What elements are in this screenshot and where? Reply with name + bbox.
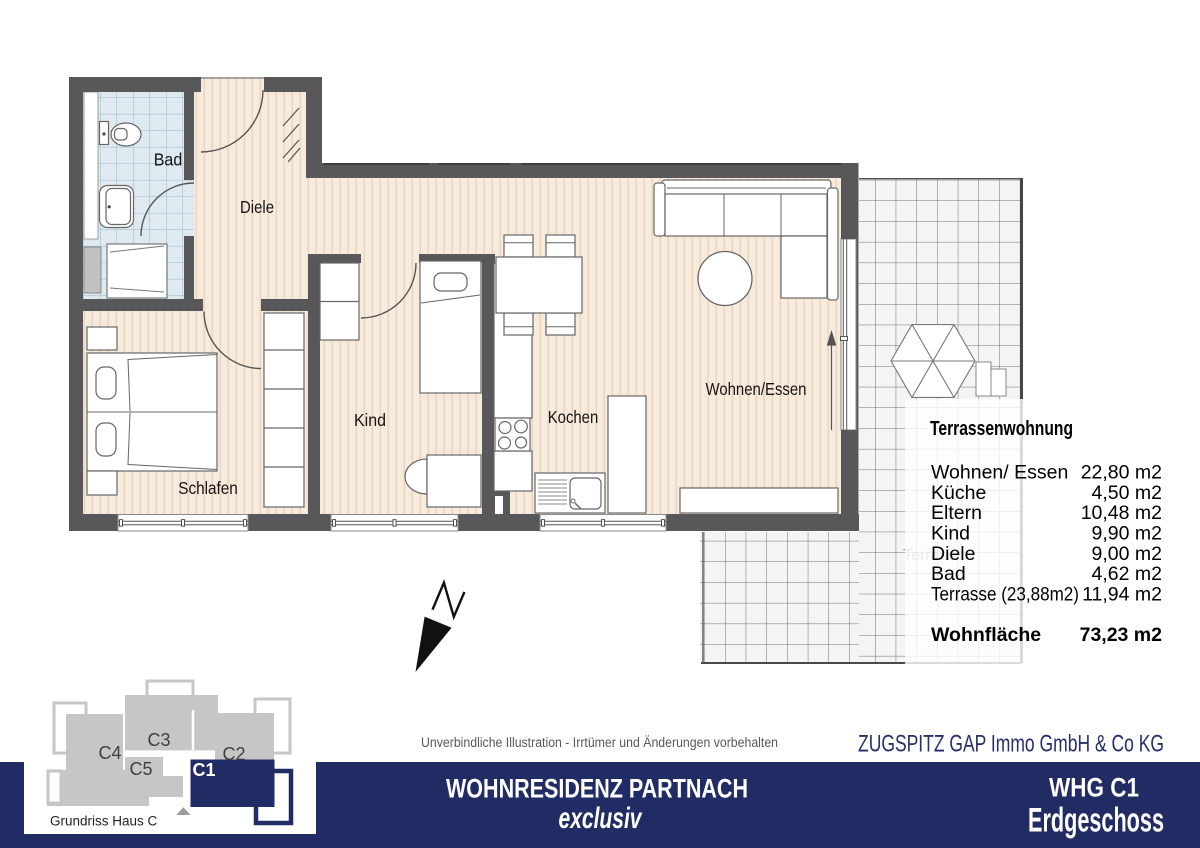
svg-text:Bad: Bad: [154, 150, 183, 170]
svg-text:9,00 m2: 9,00 m2: [1092, 543, 1162, 565]
svg-text:WOHNRESIDENZ PARTNACH: WOHNRESIDENZ PARTNACH: [446, 774, 748, 804]
svg-text:Diele: Diele: [931, 543, 975, 565]
svg-text:Terrasse (23,88m2): Terrasse (23,88m2): [931, 583, 1079, 605]
svg-text:Unverbindliche Illustration -: Unverbindliche Illustration - Irrtümer u…: [421, 735, 778, 750]
svg-text:Diele: Diele: [240, 197, 274, 217]
svg-text:Grundriss Haus C: Grundriss Haus C: [50, 813, 158, 828]
svg-text:ZUGSPITZ GAP Immo GmbH & Co KG: ZUGSPITZ GAP Immo GmbH & Co KG: [858, 731, 1164, 758]
svg-text:Erdgeschoss: Erdgeschoss: [1028, 802, 1164, 840]
svg-text:73,23 m2: 73,23 m2: [1080, 624, 1163, 646]
svg-text:10,48 m2: 10,48 m2: [1081, 502, 1162, 524]
svg-text:4,50 m2: 4,50 m2: [1092, 482, 1162, 504]
svg-text:C2: C2: [222, 744, 245, 764]
svg-text:Schlafen: Schlafen: [178, 478, 238, 498]
svg-text:22,80 m2: 22,80 m2: [1081, 462, 1162, 484]
svg-text:Eltern: Eltern: [931, 502, 982, 524]
svg-text:C4: C4: [98, 743, 121, 763]
svg-text:C5: C5: [129, 759, 152, 779]
svg-text:Wohnen/ Essen: Wohnen/ Essen: [931, 462, 1068, 484]
svg-text:exclusiv: exclusiv: [559, 802, 644, 835]
svg-text:C1: C1: [192, 760, 215, 780]
svg-text:WHG C1: WHG C1: [1049, 773, 1139, 803]
svg-text:Kochen: Kochen: [548, 407, 599, 427]
svg-text:Terrassenwohnung: Terrassenwohnung: [930, 418, 1073, 440]
svg-text:Bad: Bad: [931, 563, 966, 585]
svg-text:Wohnen/Essen: Wohnen/Essen: [706, 379, 807, 399]
svg-text:Kind: Kind: [354, 410, 386, 430]
svg-text:Wohnfläche: Wohnfläche: [931, 624, 1041, 646]
svg-text:C3: C3: [147, 730, 170, 750]
svg-text:11,94 m2: 11,94 m2: [1082, 583, 1162, 605]
svg-text:Kind: Kind: [931, 523, 970, 545]
svg-text:9,90 m2: 9,90 m2: [1092, 523, 1162, 545]
svg-text:Küche: Küche: [931, 482, 986, 504]
svg-text:4,62 m2: 4,62 m2: [1092, 563, 1162, 585]
